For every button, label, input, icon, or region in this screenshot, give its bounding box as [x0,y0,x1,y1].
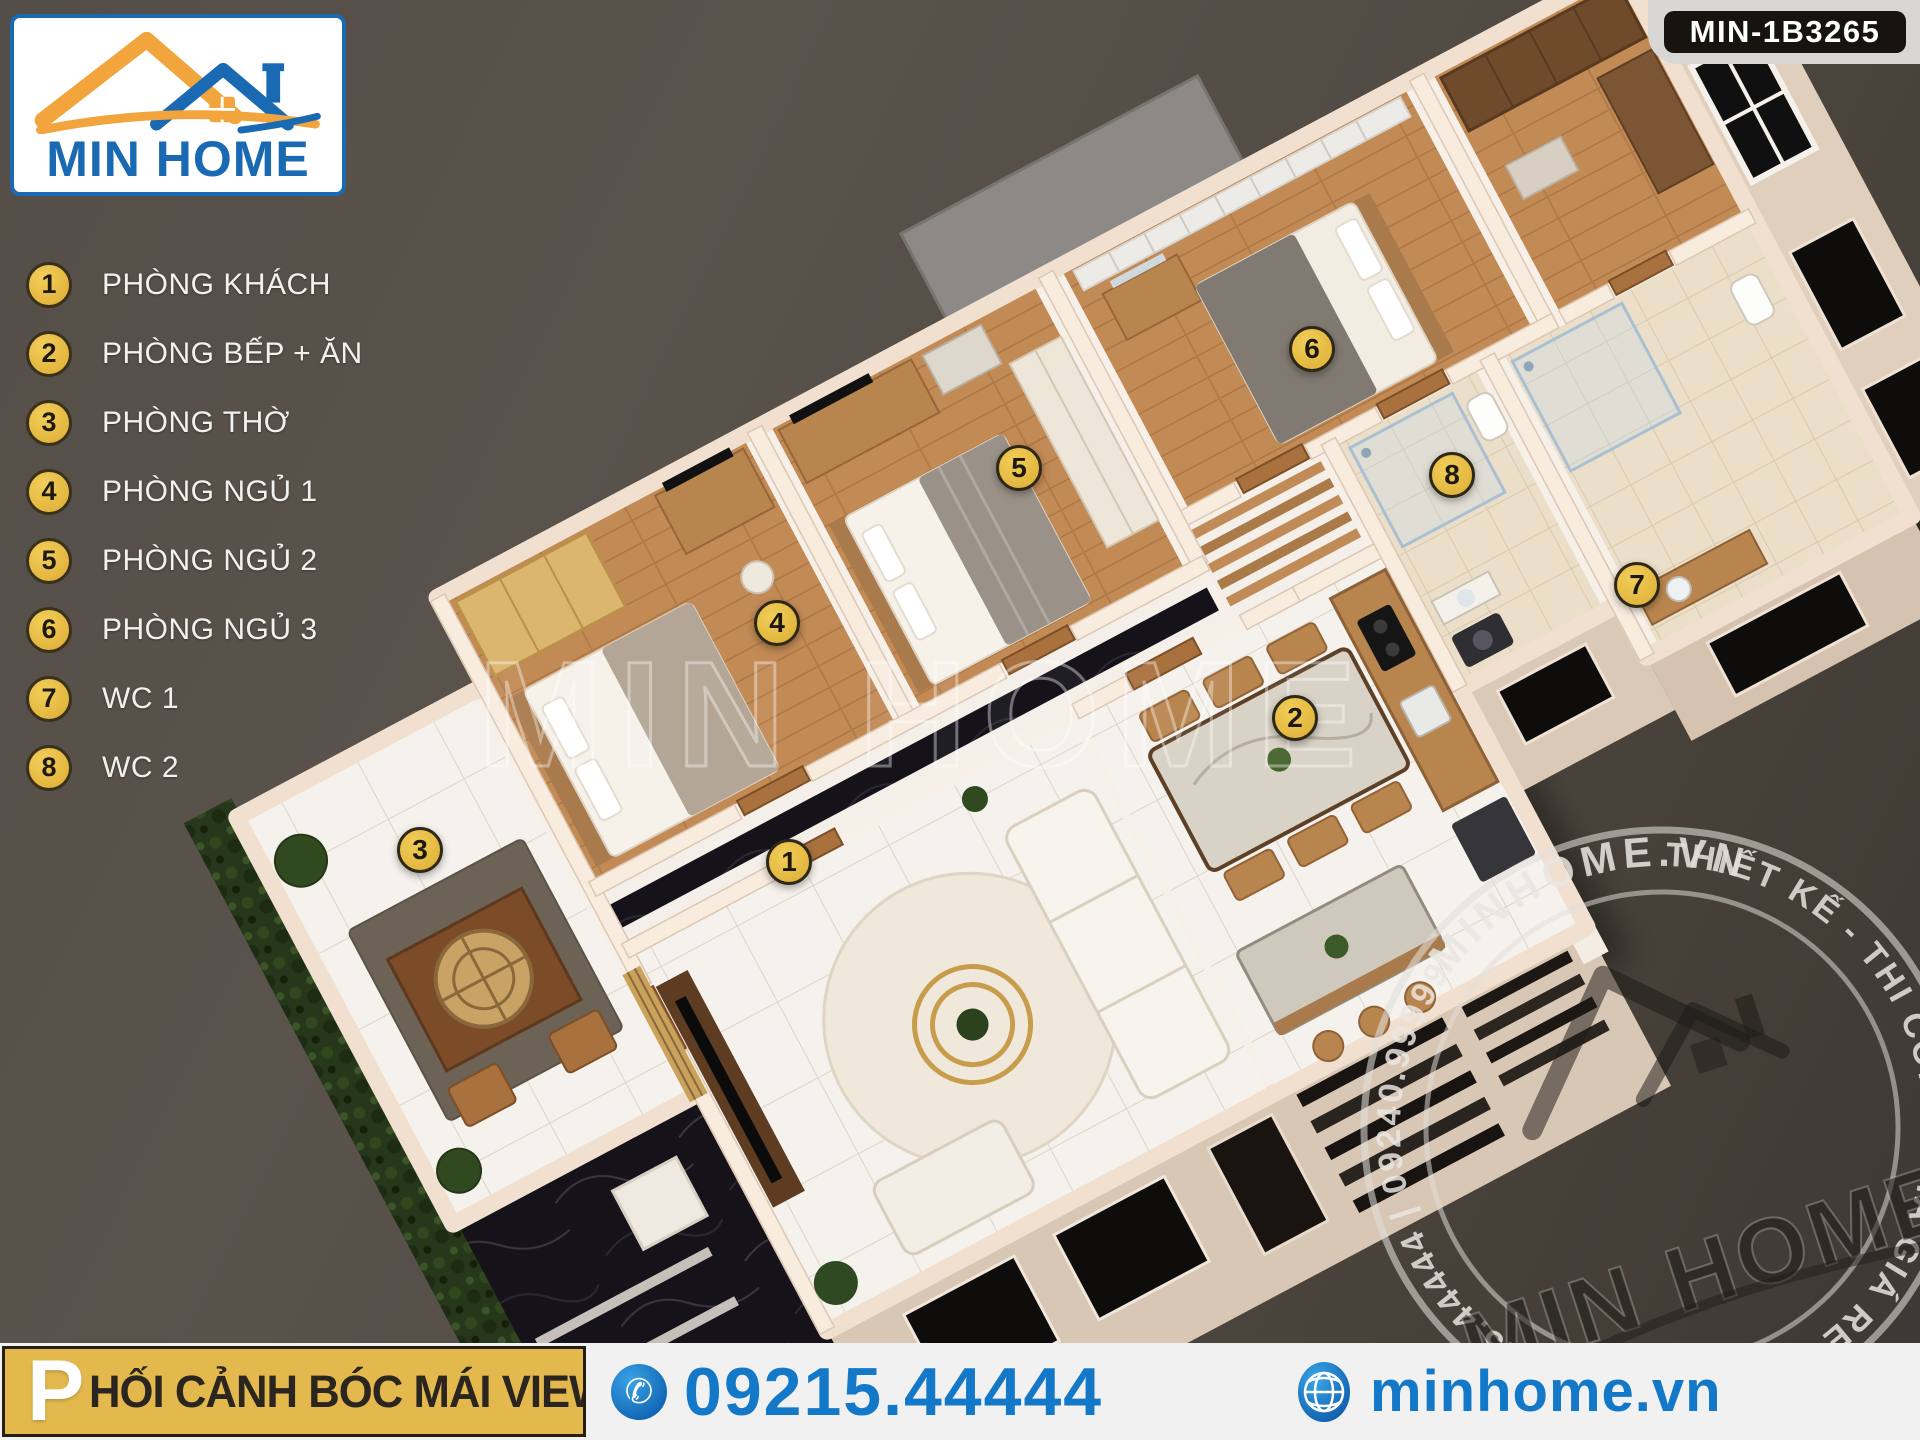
room-marker-7: 7 [1614,562,1660,608]
poster-root: { "header": { "logo_text": "MIN HOME", "… [0,0,1920,1440]
model-code-badge-frame: MIN-1B3265 [1648,0,1920,64]
room-marker-1: 1 [766,839,812,885]
legend-label: WC 1 [102,682,179,716]
legend-number-badge: 6 [26,607,72,653]
kitchen-side-facade [1460,604,1675,794]
living-room-floor [636,722,1267,1319]
room-legend: 1 PHÒNG KHÁCH 2 PHÒNG BẾP + ĂN 3 PHÒNG T… [26,250,363,802]
website-contact[interactable]: minhome.vn [1292,1343,1722,1440]
wc1-fixtures [1512,241,1878,624]
legend-item-7: 7 WC 1 [26,664,363,733]
wc1-floor [1505,227,1901,643]
legend-item-1: 1 PHÒNG KHÁCH [26,250,363,319]
legend-label: PHÒNG BẾP + ĂN [102,337,363,371]
legend-label: WC 2 [102,751,179,785]
room-marker-2: 2 [1272,695,1318,741]
caption-text: HỐI CẢNH BÓC MÁI VIEW 2 [89,1366,586,1418]
stamp-arc-right-text: THIẾT KẾ - THI CÔNG NHÀ GIÁ RẺ [1654,775,1920,1366]
legend-item-5: 5 PHÒNG NGỦ 2 [26,526,363,595]
legend-item-3: 3 PHÒNG THỜ [26,388,363,457]
room-marker-4: 4 [754,600,800,646]
room-marker-6: 6 [1289,326,1335,372]
room-marker-5: 5 [996,445,1042,491]
legend-number-badge: 2 [26,331,72,377]
wc-side-facade [1647,516,1920,741]
legend-number-badge: 4 [26,469,72,515]
legend-number-badge: 3 [26,400,72,446]
wc2-floor [1339,371,1601,677]
legend-item-8: 8 WC 2 [26,733,363,802]
stamp-house-icon [1494,930,1783,1135]
company-logo-card: MIN HOME [10,14,346,196]
entrance-steps [1296,951,1630,1213]
model-code-text: MIN-1B3265 [1690,14,1881,50]
legend-label: PHÒNG THỜ [102,406,290,440]
legend-label: PHÒNG NGỦ 1 [102,475,318,509]
rear-flat-roof [901,76,1246,326]
svg-text:✆: ✆ [625,1373,654,1411]
phone-icon: ✆ [610,1363,668,1421]
company-logo-icon [28,26,328,134]
phone-contact[interactable]: ✆ 09215.44444 [610,1343,1103,1440]
legend-number-badge: 5 [26,538,72,584]
bedroom3-floor [1064,92,1531,507]
stamp-arc-top-text: MINHOME.VN [1402,788,1767,989]
stamp-inner-ring [1365,831,1920,1426]
globe-icon [1292,1360,1356,1424]
legend-label: PHÒNG NGỦ 2 [102,544,318,578]
room-marker-8: 8 [1429,452,1475,498]
stamp-outer-ring [1286,752,1920,1440]
bedroom3-furniture [1074,97,1518,491]
room-marker-3: 3 [397,827,443,873]
living-room-furniture [640,737,1250,1313]
legend-label: PHÒNG NGỦ 3 [102,613,318,647]
patio-planter-box [613,1157,708,1249]
legend-number-badge: 8 [26,745,72,791]
legend-item-2: 2 PHÒNG BẾP + ĂN [26,319,363,388]
watermark-text: MIN HOME [478,628,1373,801]
legend-label: PHÒNG KHÁCH [102,268,331,302]
legend-number-badge: 7 [26,676,72,722]
legend-number-badge: 1 [26,262,72,308]
caption-dropcap: P [27,1355,84,1428]
right-facade [1621,0,1920,516]
wc2-fixtures [1350,377,1600,668]
legend-item-6: 6 PHÒNG NGỦ 3 [26,595,363,664]
website-url[interactable]: minhome.vn [1370,1358,1722,1425]
legend-item-4: 4 PHÒNG NGỦ 1 [26,457,363,526]
phone-number[interactable]: 09215.44444 [684,1353,1103,1431]
porch-column [1571,927,1609,965]
company-logo-text: MIN HOME [46,134,310,184]
model-code-badge: MIN-1B3265 [1664,11,1906,53]
view-caption: P HỐI CẢNH BÓC MÁI VIEW 2 [2,1346,586,1437]
footer-bar: P HỐI CẢNH BÓC MÁI VIEW 2 ✆ 09215.44444 … [0,1343,1920,1440]
